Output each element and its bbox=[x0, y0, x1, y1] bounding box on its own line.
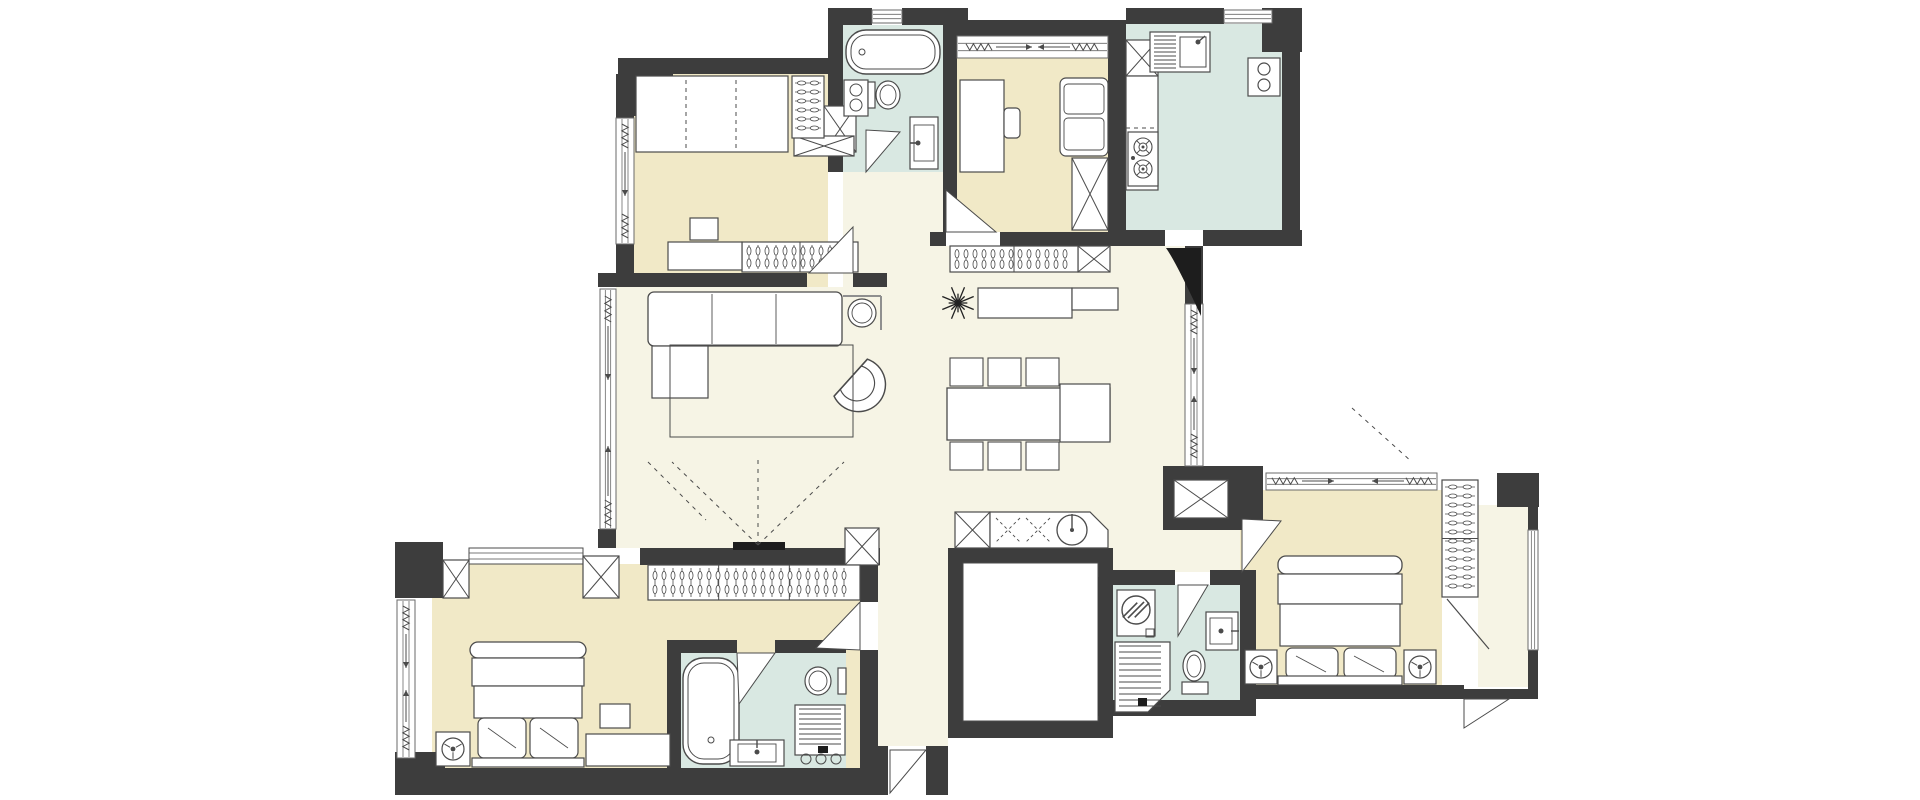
wall bbox=[1282, 24, 1300, 230]
dining-chair bbox=[950, 358, 983, 386]
column-box bbox=[794, 136, 854, 156]
tv bbox=[733, 542, 785, 550]
sofa bbox=[648, 292, 842, 346]
sofa-chaise bbox=[652, 346, 708, 398]
wall bbox=[1000, 232, 1118, 246]
round-basin-dot bbox=[1070, 528, 1074, 532]
wall bbox=[616, 74, 634, 120]
master-closet-hangers bbox=[648, 565, 860, 600]
lamp bbox=[442, 738, 464, 760]
cabinet bbox=[636, 76, 788, 152]
floor-plan-screenshot bbox=[0, 0, 1920, 800]
study-wardrobe-box bbox=[1072, 158, 1108, 230]
wall-corner bbox=[1497, 473, 1539, 507]
exterior-door-wedge bbox=[890, 750, 926, 793]
stool bbox=[690, 218, 718, 240]
bench-low bbox=[586, 734, 670, 766]
foyer-void bbox=[963, 563, 1098, 721]
column-box bbox=[443, 560, 469, 598]
wall bbox=[1240, 473, 1253, 520]
wall bbox=[957, 20, 1108, 36]
wall bbox=[1203, 230, 1302, 246]
column-box bbox=[1174, 480, 1228, 518]
pillow bbox=[1286, 648, 1338, 678]
wall bbox=[1113, 570, 1175, 585]
master-headboard bbox=[472, 758, 584, 767]
wall bbox=[1108, 20, 1126, 232]
desk bbox=[960, 80, 1004, 172]
small-table bbox=[600, 704, 630, 728]
faucet bbox=[755, 750, 760, 755]
ac-platform-dash bbox=[1352, 408, 1412, 462]
faucet bbox=[1219, 629, 1224, 634]
pillow bbox=[1344, 648, 1396, 678]
floor-hall-right bbox=[1113, 530, 1250, 572]
toilet-tank bbox=[868, 82, 875, 108]
column-box bbox=[583, 556, 619, 598]
window-bedroom-right-east bbox=[1528, 530, 1538, 650]
wall-corner bbox=[395, 542, 443, 598]
washer-drum bbox=[1122, 596, 1150, 624]
bed-right-headboard bbox=[1278, 676, 1402, 685]
entry-closet-hangers bbox=[950, 246, 1078, 272]
wall bbox=[828, 8, 872, 25]
dining-chair bbox=[1026, 442, 1059, 470]
washer-detail bbox=[818, 746, 828, 753]
toilet-bowl bbox=[1183, 651, 1205, 681]
window-bath-top bbox=[872, 10, 902, 23]
wall bbox=[930, 232, 946, 246]
wall bbox=[926, 746, 948, 795]
exterior-door-wedge bbox=[1464, 699, 1509, 728]
sideboard bbox=[978, 288, 1072, 318]
master-bed-band bbox=[472, 658, 584, 686]
wall bbox=[1118, 230, 1165, 246]
lamp bbox=[1250, 656, 1272, 678]
master-bed-foot bbox=[470, 642, 586, 658]
wall bbox=[1126, 8, 1224, 24]
window-kitchen bbox=[1224, 10, 1272, 23]
wash-counter bbox=[990, 512, 1108, 548]
floor-balcony-nook bbox=[1478, 505, 1528, 687]
wall bbox=[598, 273, 807, 287]
wardrobe-hangers-right bbox=[1442, 480, 1478, 597]
toilet-tank bbox=[1182, 682, 1208, 694]
wall bbox=[1464, 689, 1538, 699]
dining-chair bbox=[1026, 358, 1059, 386]
stove-knob bbox=[1131, 156, 1135, 160]
sliding-door-track bbox=[469, 548, 583, 564]
wall-appliance bbox=[1248, 58, 1280, 96]
shower-detail bbox=[1138, 698, 1147, 706]
floor-hall-entry bbox=[878, 548, 948, 746]
wall bbox=[1240, 685, 1464, 699]
bench bbox=[668, 242, 742, 270]
dining-end-seat bbox=[1060, 384, 1110, 442]
bed-right-foot bbox=[1278, 556, 1402, 574]
toilet-tank bbox=[838, 668, 846, 694]
bed-right-band bbox=[1278, 574, 1402, 604]
bed-right-blanket bbox=[1280, 604, 1400, 646]
desk-chair bbox=[1004, 108, 1020, 138]
column-box bbox=[1078, 246, 1110, 272]
wall bbox=[667, 640, 737, 653]
wall bbox=[860, 650, 878, 768]
daybed bbox=[1060, 78, 1108, 156]
column-box bbox=[845, 528, 879, 565]
wall bbox=[640, 548, 880, 565]
lamp bbox=[1409, 656, 1431, 678]
wall bbox=[853, 273, 887, 287]
wall bbox=[598, 529, 616, 548]
dining-chair bbox=[988, 358, 1021, 386]
door-gap-master bbox=[619, 548, 640, 564]
column-box bbox=[955, 512, 990, 548]
wardrobe-hangers bbox=[792, 76, 824, 138]
wall bbox=[878, 746, 888, 795]
dining-chair bbox=[950, 442, 983, 470]
floor-plan bbox=[0, 0, 1920, 800]
dining-chair bbox=[988, 442, 1021, 470]
master-bed-blanket bbox=[474, 686, 582, 718]
wall bbox=[395, 768, 878, 795]
sideboard bbox=[1072, 288, 1118, 310]
wall bbox=[1098, 577, 1113, 716]
